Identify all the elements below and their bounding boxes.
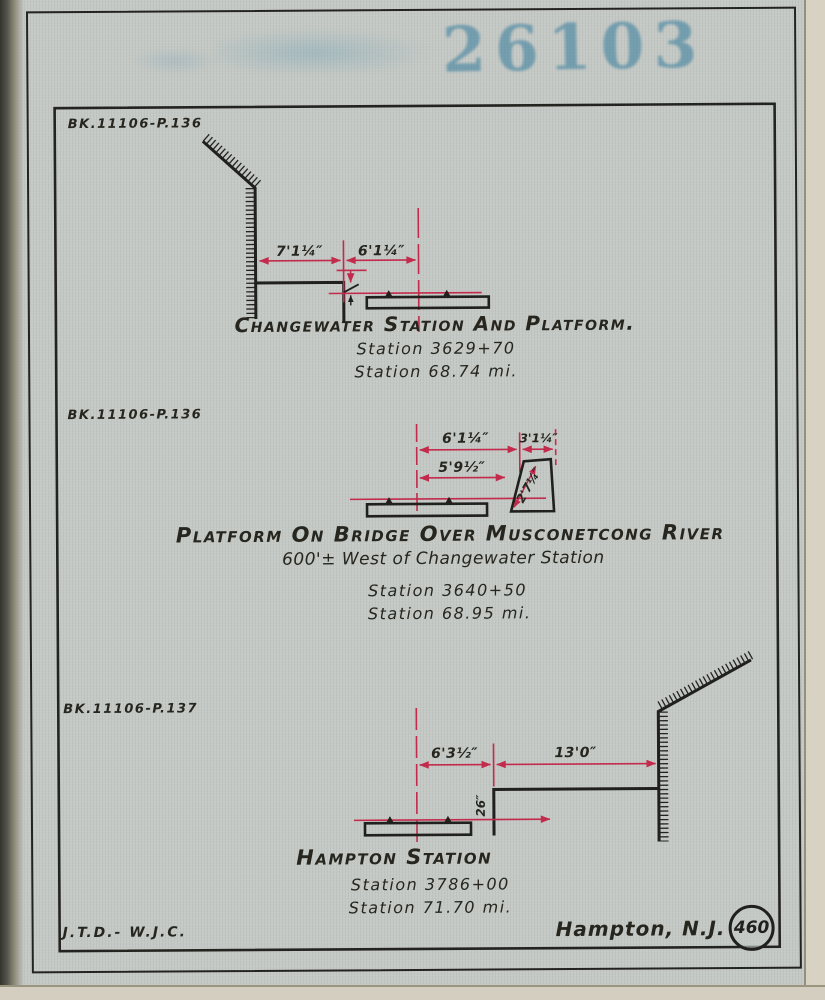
milepost-label: Station 68.74 mi.: [354, 363, 518, 380]
station-label: Station 3640+50: [368, 582, 527, 599]
location-label: Hampton, N.J.: [556, 918, 726, 939]
book-reference: BK.11106-P.136: [68, 117, 203, 131]
dimension-label: 6'1¼″: [358, 244, 405, 258]
drawing-sheet: BK.11106-P.136 7'1¼″ 6'1¼″ Changewater S…: [0, 0, 825, 1000]
dimension-label: 6'3½″: [431, 747, 478, 761]
wall-hatching: [206, 137, 258, 184]
dimension-line: [420, 449, 517, 450]
station-label: Station 3786+00: [351, 876, 510, 893]
book-reference: BK.11106-P.136: [67, 408, 202, 422]
rail-elevation-line: [354, 819, 550, 820]
track-section: [365, 823, 471, 836]
track-section: [367, 297, 489, 309]
sheet-number: 460: [734, 918, 770, 938]
blue-number-stamp: 26103: [441, 7, 707, 87]
book-reference: BK.11106-P.137: [63, 702, 198, 716]
drawing-artwork: BK.11106-P.136 7'1¼″ 6'1¼″ Changewater S…: [0, 0, 825, 1000]
track-section: [367, 504, 487, 517]
dimension-line: [420, 477, 505, 478]
rail-elevation-line: [329, 293, 482, 294]
changewater-linework: [178, 124, 499, 341]
milepost-label: Station 71.70 mi.: [349, 899, 513, 916]
station-wall: [203, 141, 256, 319]
station-label: Station 3629+70: [357, 340, 516, 357]
break-mark: [344, 284, 359, 292]
platform-outline: [494, 789, 659, 836]
rail-mark: [385, 497, 393, 504]
diagram-title: Platform On Bridge Over Musconetcong Riv…: [176, 522, 725, 546]
diagram-title: Changewater Station And Platform.: [235, 313, 636, 335]
dimension-line: [497, 764, 656, 765]
station-wall: [658, 660, 752, 842]
rail-mark: [445, 497, 453, 504]
diagram-subtitle: 600'± West of Changewater Station: [282, 550, 605, 569]
dimension-label: 5'9½″: [438, 461, 485, 475]
wall-hatching: [250, 188, 251, 319]
sheet-number-badge: 460: [728, 905, 774, 951]
dimension-label: 6'1¼″: [442, 432, 489, 446]
dimension-label: 13'0″: [554, 746, 596, 760]
draftsman-initials: J.T.D.- W.J.C.: [63, 925, 187, 940]
wall-hatching: [663, 711, 664, 841]
dimension-label: 7'1¼″: [276, 245, 323, 259]
track-centerline: [417, 424, 418, 516]
wall-hatching: [658, 655, 751, 707]
dimension-label: 26″: [475, 795, 487, 817]
dimension-label: 3'1¼″: [520, 432, 558, 444]
diagram-title: Hampton Station: [296, 847, 492, 869]
milepost-label: Station 68.95 mi.: [368, 605, 532, 622]
